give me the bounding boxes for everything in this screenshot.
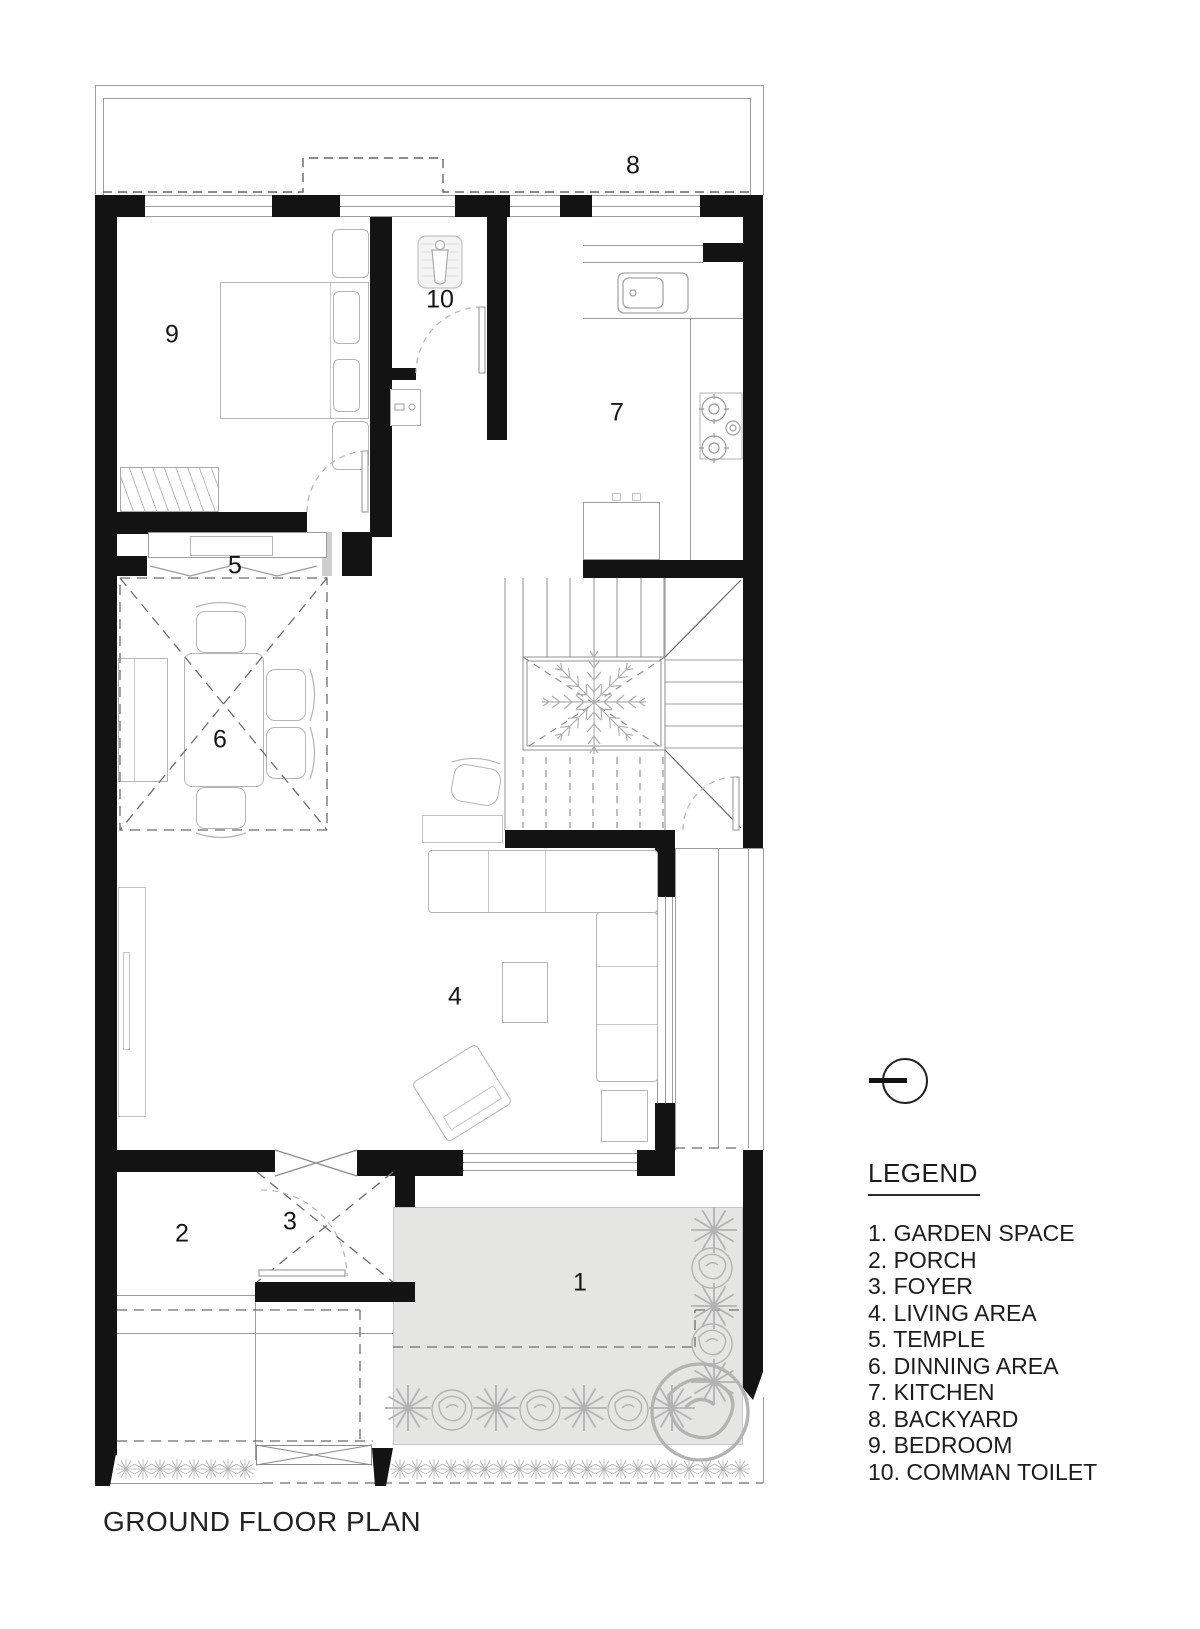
kitchen-island [583,502,660,560]
wall-temple-right [342,532,372,576]
room-label-toilet: 10 [426,286,454,315]
room-label-temple: 5 [228,552,242,581]
plot-boundary-right-lower [763,1397,764,1483]
entrance-gate [256,1445,372,1465]
wall-temple-left-stub [95,556,147,576]
kitchen-island-tap-2 [632,493,641,501]
sofa-horizontal [428,850,658,913]
nightstand-2 [332,421,369,470]
wall-porch-top [95,1150,275,1172]
pillow-1 [333,291,360,344]
stair-direction-lines [665,580,741,828]
wall-kitchen-left [487,217,507,440]
legend-item: 1. GARDEN SPACE [868,1220,1097,1247]
sofa-vertical [596,912,658,1082]
armchair-seat-line [443,1085,502,1130]
legend-item: 5. TEMPLE [868,1326,1097,1353]
sofa-seat-div-2 [545,851,546,912]
wall-foyer-bottom [255,1282,415,1302]
plot-boundary-bottom-left [95,1483,263,1484]
squat-toilet-icon [418,236,462,288]
room-label-kitchen: 7 [610,399,624,428]
toilet-window [340,195,455,217]
wall-kitchen-shelf-stub [703,243,743,262]
nightstand-1 [332,229,369,278]
room-label-dining: 6 [213,726,227,755]
backyard-inner-top [103,98,750,99]
legend-item: 6. DINNING AREA [868,1353,1097,1380]
plot-boundary-left-upper [95,85,96,195]
pillow-2 [333,359,360,412]
legend-item: 7. KITCHEN [868,1379,1097,1406]
legend-heading: LEGEND [868,1158,980,1196]
room-label-garden: 1 [573,1269,587,1298]
wall-hall-living [505,830,675,848]
living-side-window [657,897,673,1103]
sofa-seat-div-4 [597,1024,657,1025]
legend-item: 9. BEDROOM [868,1432,1097,1459]
plot-boundary-right-passage [763,848,764,1150]
legend-panel: LEGEND 1. GARDEN SPACE 2. PORCH 3. FOYER… [868,1158,1097,1485]
room-label-foyer: 3 [283,1208,297,1237]
coffee-table [502,962,548,1023]
floor-plan-sheet: 1 2 3 4 5 6 7 8 9 10 LEGEND 1. GARDEN SP… [0,0,1200,1629]
driveway-edge-line [255,1295,256,1460]
wall-foyer-right [395,1150,415,1207]
legend-item: 10. COMMAN TOILET [868,1459,1097,1486]
side-table-band [422,815,503,843]
dining-table [184,653,264,787]
wall-top-seg-5 [700,195,763,217]
sofa-seat-div-1 [488,851,489,912]
dining-chair-bottom [196,787,246,829]
floor-plan-page: { "title": "GROUND FLOOR PLAN", "legend"… [0,0,1200,1629]
kitchen-island-tap-1 [612,493,621,501]
tv-panel [123,952,130,1050]
legend-list: 1. GARDEN SPACE 2. PORCH 3. FOYER 4. LIV… [868,1220,1097,1485]
wall-garden-pier [637,1150,675,1176]
wall-top-seg-3 [455,195,510,217]
wall-top-seg-4 [560,195,592,217]
room-label-porch: 2 [175,1220,189,1249]
room-label-bedroom: 9 [165,321,179,350]
drawing-title: GROUND FLOOR PLAN [103,1506,421,1538]
north-orientation-tick [869,1078,907,1083]
ottoman [601,1090,648,1142]
room-label-living: 4 [448,983,462,1012]
kitchen-counter-edge-h [583,318,743,319]
hob-icon [699,393,742,463]
dining-chair-right-1 [266,669,306,721]
side-passage-line-1 [718,848,719,1148]
wall-window-pier-top [655,848,675,897]
dining-chair-right-2 [266,727,306,779]
wall-exterior-left [95,195,117,1455]
wall-exterior-right-lower [743,1150,763,1372]
bedroom-window [145,195,272,217]
legend-item: 3. FOYER [868,1273,1097,1300]
staircase-dashed-flight [523,657,665,828]
wall-bedroom-toilet [370,217,392,537]
kitchen-counter-edge-v [690,319,691,560]
backyard-dashed-line [103,158,750,192]
kitchen-sink-icon [618,273,688,313]
living-wall-outer-face [675,848,676,1150]
foyer-dashed-x [257,1172,393,1282]
hedge-strips [116,1459,750,1479]
wall-exterior-right-upper [743,217,763,848]
kitchen-shelf-line-1 [583,245,703,246]
wall-window-pier-bottom [655,1103,675,1150]
wall-top-seg-1 [95,195,145,217]
plot-boundary-top [95,85,763,86]
foyer-opening-x [275,1150,357,1176]
bed-head-line [330,283,331,418]
washbasin [390,389,421,426]
backyard-inner-left [103,98,104,195]
sideboard [118,658,168,782]
kitchen-window-small [510,195,560,217]
hall-chair [449,762,503,808]
kitchen-window [592,195,700,217]
legend-item: 8. BACKYARD [868,1406,1097,1433]
room-label-backyard: 8 [626,152,640,181]
wardrobe [120,467,219,512]
armchair [411,1043,513,1143]
side-passage-top-edge [675,848,763,849]
legend-item: 2. PORCH [868,1247,1097,1274]
wall-kitchen-stair [583,560,743,578]
plot-boundary-right-upper [763,85,764,195]
wall-top-seg-2 [272,195,340,217]
wall-bedroom-bottom [95,512,307,534]
living-garden-window [463,1153,637,1171]
staircase [505,578,743,830]
legend-item: 4. LIVING AREA [868,1300,1097,1327]
stair-planter-palm [542,650,646,754]
sofa-seat-div-3 [597,966,657,967]
kitchen-shelf-line-2 [583,262,703,263]
sideboard-inner-line [134,659,135,781]
dining-chair-top [196,611,246,653]
backyard-inner-right [750,98,751,195]
wall-toilet-stub [390,368,416,380]
side-passage-line-2 [748,848,749,1148]
garden-area [393,1207,743,1445]
